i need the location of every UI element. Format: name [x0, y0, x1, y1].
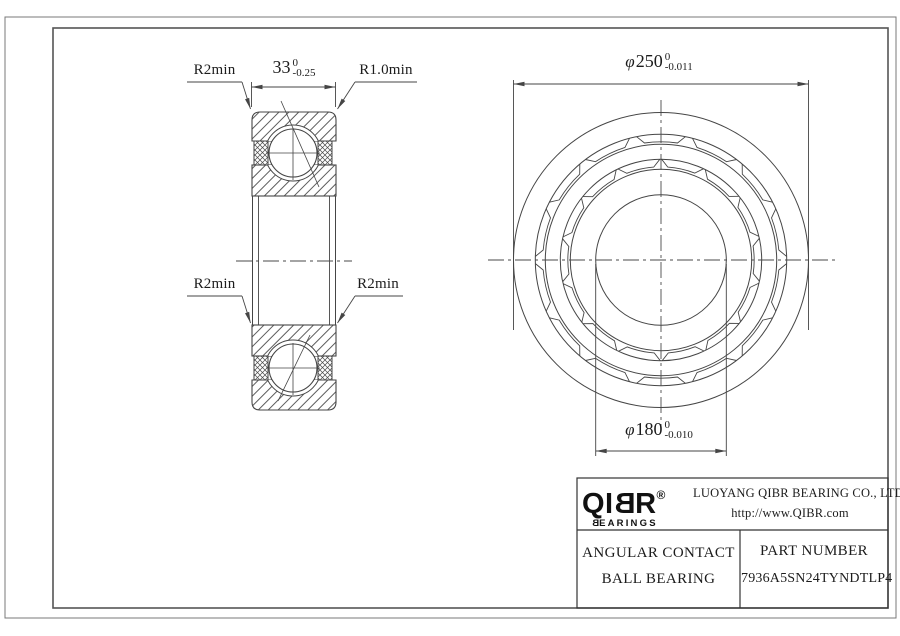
callout-r2min-bottom-left: R2min [187, 276, 242, 293]
bore-diameter-dimension: φ 180 0 -0.010 [559, 419, 759, 440]
cage-bottom-left [254, 356, 268, 380]
company-website: http://www.QIBR.com [693, 506, 887, 521]
width-tol-lower: -0.25 [293, 68, 316, 78]
od-tol-upper: 0 [665, 52, 693, 62]
bore-tol-upper: 0 [664, 420, 692, 430]
cage-bottom-right [318, 356, 332, 380]
part-number-value: 7936A5SN24TYNDTLP4 [741, 571, 887, 587]
od-tol-lower: -0.011 [665, 62, 693, 72]
width-dimension: 33 0 -0.25 [250, 57, 338, 78]
product-name-line1: ANGULAR CONTACT [578, 545, 739, 562]
engineering-drawing-canvas [0, 0, 900, 636]
registered-mark: ® [657, 488, 666, 502]
callout-r2min-bottom-right: R2min [352, 276, 404, 293]
bore-tol-lower: -0.010 [664, 430, 692, 440]
company-logo: QIBR® [582, 481, 666, 519]
cage-top-right [318, 141, 332, 165]
bearing-drawing-page: R2min 33 0 -0.25 R1.0min R2min R2min φ 2… [0, 0, 900, 636]
bore-diameter-value: 180 [635, 419, 662, 440]
inner-frame [53, 28, 888, 608]
phi-symbol: φ [625, 420, 634, 440]
part-number-label: PART NUMBER [741, 543, 887, 560]
company-name: LUOYANG QIBR BEARING CO., LTD [693, 486, 887, 501]
callout-r2min-top-left: R2min [187, 62, 242, 79]
width-value: 33 [273, 57, 291, 78]
outer-diameter-dimension: φ 250 0 -0.011 [559, 51, 759, 72]
outer-diameter-value: 250 [636, 51, 663, 72]
cross-section-view [252, 101, 336, 410]
logo-subtitle: BEARINGS [590, 518, 658, 529]
width-tol-upper: 0 [293, 58, 316, 68]
phi-symbol: φ [625, 52, 634, 72]
callout-r1min-top-right: R1.0min [355, 62, 417, 79]
outer-border [5, 17, 896, 618]
product-name-line2: BALL BEARING [578, 571, 739, 588]
cage-top-left [254, 141, 268, 165]
